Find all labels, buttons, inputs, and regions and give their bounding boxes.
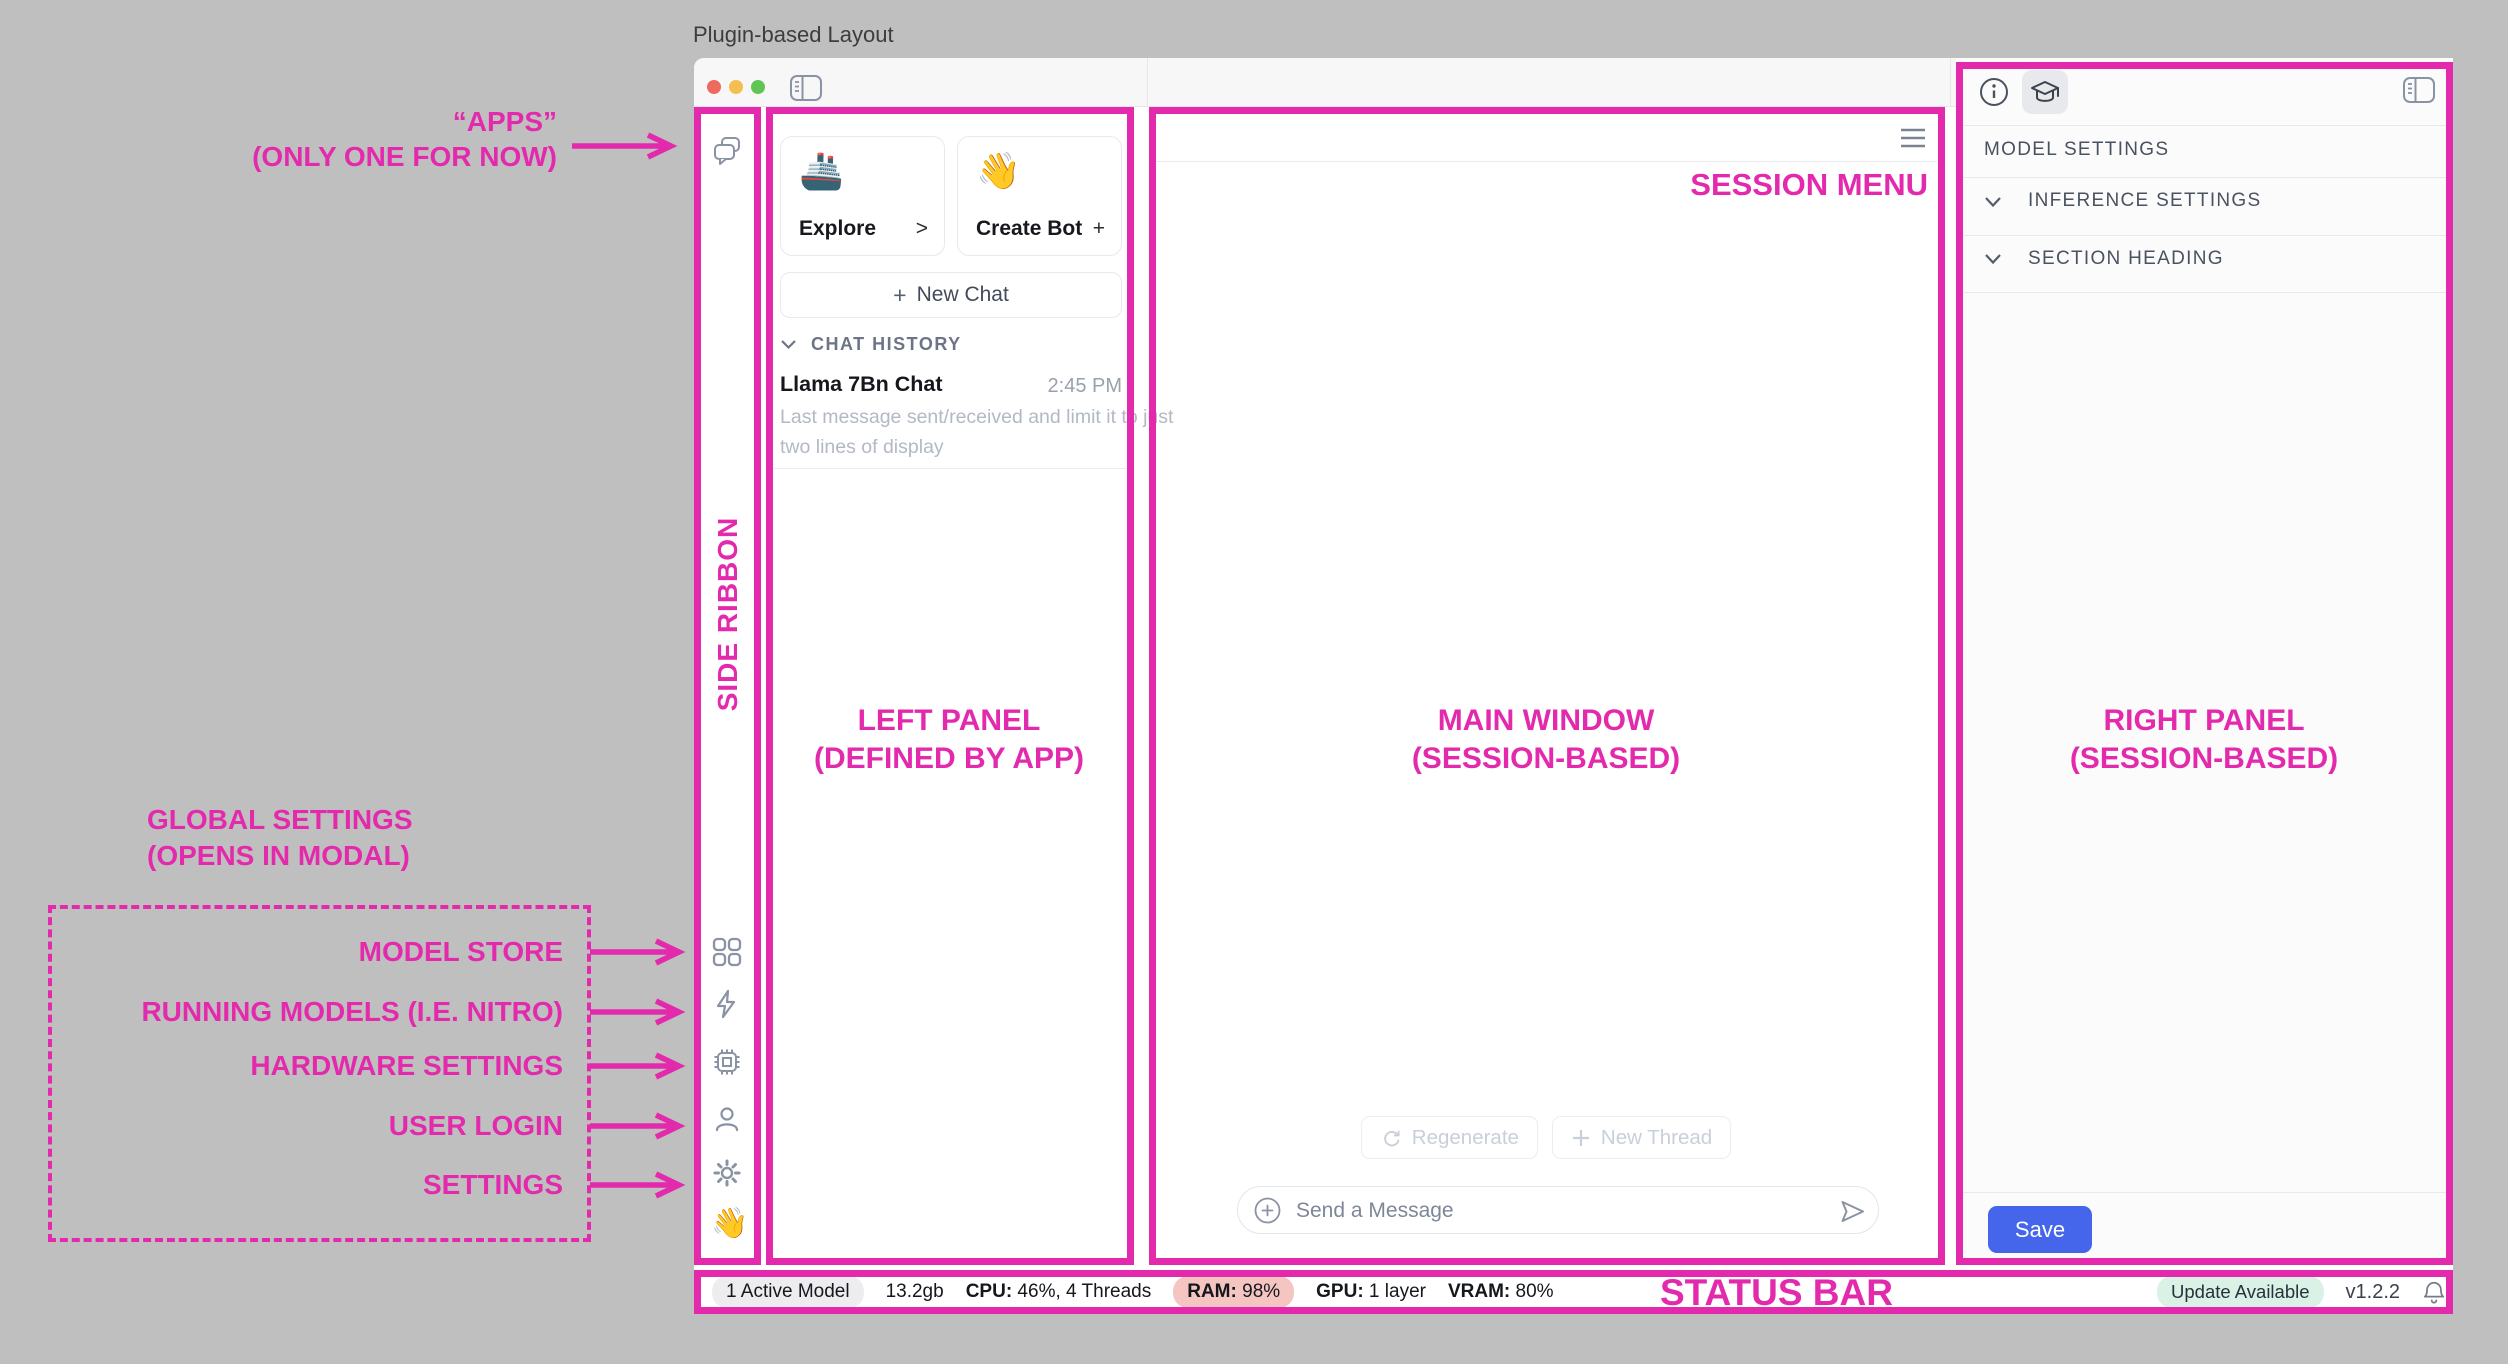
right-panel-outline [1956,62,2453,1265]
apps-annotation: “APPS” (ONLY ONE FOR NOW) [57,104,557,174]
side-ribbon-annotation: SIDE RIBBON [709,464,745,764]
left-panel-annotation: LEFT PANEL (DEFINED BY APP) [749,702,1149,778]
global-settings-annotation: GLOBAL SETTINGS (OPENS IN MODAL) [147,802,413,874]
hardware-settings-annotation: HARDWARE SETTINGS [0,1049,563,1083]
hardware-settings-arrow [588,1050,694,1082]
titlebar-divider [1147,58,1148,107]
close-button[interactable] [707,80,721,94]
user-login-arrow [588,1110,694,1142]
page-title: Plugin-based Layout [693,22,894,48]
settings-arrow [588,1169,694,1201]
sidebar-toggle-icon[interactable] [789,74,823,102]
settings-annotation: SETTINGS [0,1168,563,1202]
running-models-annotation: RUNNING MODELS (I.E. NITRO) [0,995,563,1029]
main-window-annotation: MAIN WINDOW (SESSION-BASED) [1346,702,1746,778]
model-store-annotation: MODEL STORE [0,935,563,969]
titlebar-divider [1950,58,1951,107]
left-panel-outline [766,107,1134,1265]
model-store-arrow [588,936,694,968]
minimize-button[interactable] [729,80,743,94]
apps-arrow [568,130,686,162]
user-login-annotation: USER LOGIN [0,1109,563,1143]
status-bar-annotation: STATUS BAR [1660,1272,1893,1314]
right-panel-annotation: RIGHT PANEL (SESSION-BASED) [2004,702,2404,778]
zoom-button[interactable] [751,80,765,94]
design-canvas: Plugin-based Layout 👋 [0,0,2508,1364]
running-models-arrow [588,996,694,1028]
session-menu-annotation: SESSION MENU [1228,167,1928,203]
main-window-outline [1149,107,1945,1265]
status-bar-outline [694,1270,2453,1314]
